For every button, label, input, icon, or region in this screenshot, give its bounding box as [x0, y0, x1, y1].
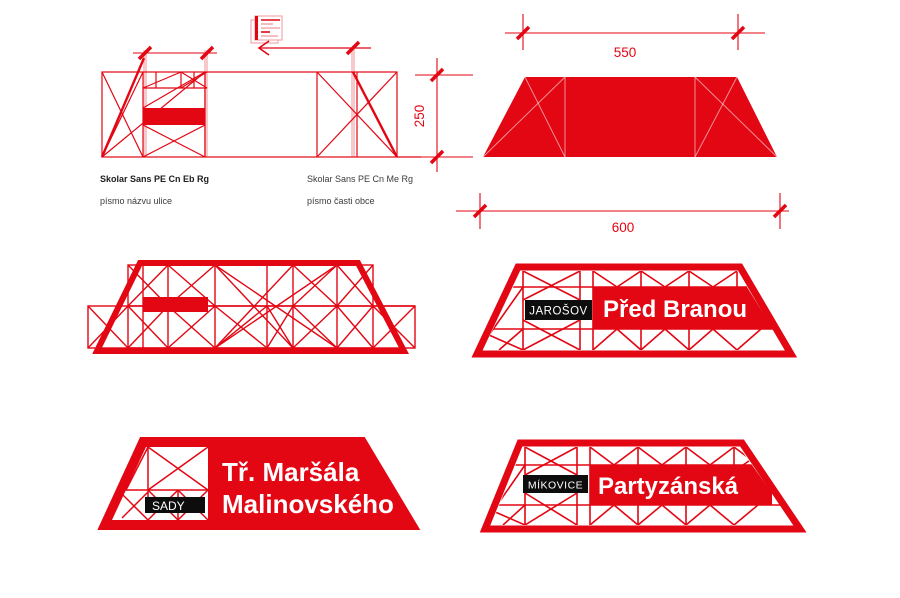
height-dimension: 250 — [412, 58, 473, 172]
sign-example-jarosov: JAROŠOV Před Branou — [477, 267, 791, 354]
sign-example-mikovice: MÍKOVICE Partyzánská — [485, 443, 800, 529]
sign-shape-spec: 550 600 — [456, 14, 789, 235]
district-label: SADY — [152, 499, 185, 513]
guide-column — [143, 50, 147, 157]
name-field-highlight — [143, 108, 205, 125]
street-name-font-note: Skolar Sans PE Cn Eb Rg — [100, 174, 209, 184]
district-label: JAROŠOV — [529, 305, 587, 318]
district-font-note: Skolar Sans PE Cn Me Rg — [307, 174, 413, 184]
sign-silhouette — [483, 77, 777, 157]
signage-spec-poster: 250 550 — [0, 0, 900, 598]
street-name-font-desc: písmo názvu ulice — [100, 196, 172, 206]
street-name-line1: Tř. Maršála — [222, 457, 360, 487]
sign-example-sady: SADY Tř. Maršála Malinovského — [102, 440, 415, 527]
slant-guide — [102, 58, 144, 157]
bottom-width-dimension-label: 600 — [612, 220, 635, 235]
height-dimension-label: 250 — [412, 105, 427, 128]
street-name-label: Partyzánská — [598, 473, 739, 500]
layout-spec-drawing — [102, 16, 421, 157]
diagram-canvas: 250 550 — [0, 0, 900, 598]
construction-truss-diagram — [88, 263, 415, 351]
street-name-line2: Malinovského — [222, 489, 394, 519]
district-font-desc: písmo časti obce — [307, 196, 375, 206]
name-field-highlight — [143, 297, 208, 312]
street-name-label: Před Branou — [603, 296, 747, 323]
top-width-dimension-label: 550 — [614, 45, 637, 60]
slant-guide — [353, 72, 397, 157]
document-icon — [251, 16, 282, 43]
district-label: MÍKOVICE — [528, 479, 583, 492]
bottom-width-dimension: 600 — [456, 193, 789, 235]
top-width-dimension: 550 — [505, 14, 765, 60]
guide-column — [351, 48, 355, 157]
